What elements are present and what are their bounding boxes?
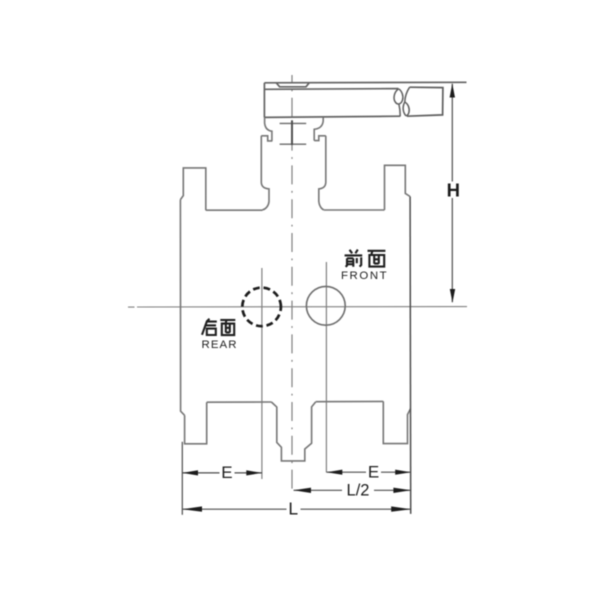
svg-text:L: L: [288, 498, 298, 518]
svg-text:REAR: REAR: [202, 339, 238, 351]
svg-text:L/2: L/2: [347, 481, 370, 499]
svg-text:H: H: [447, 179, 460, 200]
svg-text:FRONT: FRONT: [341, 270, 388, 282]
svg-text:E: E: [221, 463, 232, 482]
svg-text:E: E: [368, 463, 379, 482]
